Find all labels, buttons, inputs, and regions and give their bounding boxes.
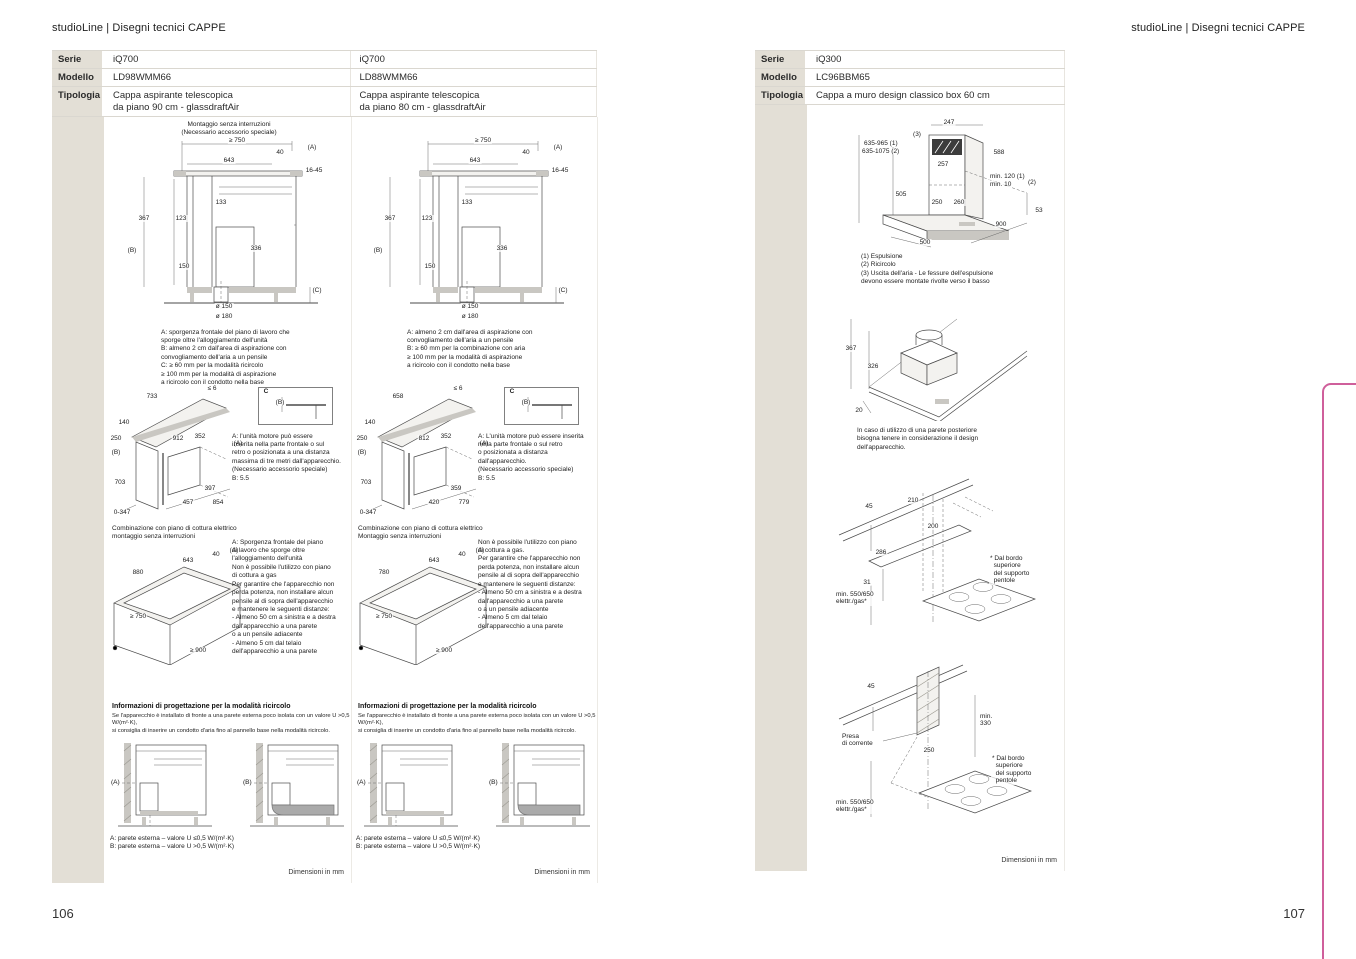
dimension-label: ≤ 6: [207, 385, 218, 392]
catalog-spread: studioLine | Disegni tecnici CAPPE studi…: [0, 0, 1356, 959]
dimension-label: 367: [138, 215, 151, 222]
dimension-label: 286: [875, 549, 888, 556]
dimension-label: (2): [1027, 179, 1037, 186]
dimension-label: 200: [927, 523, 940, 530]
modello-label: Modello: [755, 69, 807, 86]
recirculation-body: Se l'apparecchio è installato di fronte …: [358, 713, 598, 736]
dimension-label: 505: [895, 191, 908, 198]
dimension-label: 16-45: [551, 167, 570, 174]
dimension-label: 250: [923, 747, 936, 754]
dimension-label: 658: [392, 393, 405, 400]
serie-label: Serie: [755, 51, 807, 68]
dimension-label: 780: [378, 569, 391, 576]
dimension-label: 20: [854, 407, 863, 414]
dimension-label: * Dal bordo superiore del supporto pento…: [991, 755, 1032, 785]
dimension-label: 45: [864, 503, 873, 510]
dimension-label: min. 550/650 elettr./gas*: [835, 799, 875, 814]
recirculation-heading: Informazioni di progettazione per la mod…: [358, 703, 596, 710]
dimension-label: (A): [356, 779, 367, 786]
dimension-label: 150: [424, 263, 437, 270]
section-view-drawing: ≥ 750(A)4064316-45367123133(B)336150(C)ø…: [370, 137, 580, 322]
dimension-label: 16-45: [305, 167, 324, 174]
dimension-label: * Dal bordo superiore del supporto pento…: [989, 555, 1030, 585]
tipologia-col2: Cappa aspirante telescopica da piano 80 …: [351, 87, 598, 116]
dimension-label: 150: [178, 263, 191, 270]
dimension-label: (B): [521, 399, 532, 406]
dimension-label: 250: [931, 199, 944, 206]
annotation-text-abc: A: almeno 2 cm dall'area di aspirazione …: [407, 329, 582, 371]
dimension-label: 326: [867, 363, 880, 370]
dimension-label: 779: [458, 499, 471, 506]
page-right: Serie iQ300 Modello LC96BBM65 Tipologia …: [755, 50, 1065, 880]
dimension-label: 352: [194, 433, 207, 440]
dimension-label: 880: [132, 569, 145, 576]
dimension-label: 367: [384, 215, 397, 222]
dimension-label: 352: [440, 433, 453, 440]
serie-col1: iQ700: [104, 51, 351, 68]
dimension-label: 123: [421, 215, 434, 222]
modello-label: Modello: [52, 69, 104, 86]
dimension-label: Presa di corrente: [841, 733, 874, 748]
dimension-label: ≥ 900: [435, 647, 453, 654]
iso-hob-drawing: 78064340(A)≥ 750≥ 900: [352, 547, 492, 665]
dimension-label: (C): [311, 287, 322, 294]
drawing-title: Montaggio senza interruzioni (Necessario…: [134, 121, 324, 138]
wall-value-footnote: A: parete esterna – valore U ≤0,5 W/(m²·…: [356, 835, 594, 852]
table-row-tipologia: Tipologia Cappa a muro design classico b…: [755, 87, 1065, 105]
dimension-label: 0-347: [113, 509, 132, 516]
annotation-text-hob: Non è possibile l'utilizzo con piano di …: [478, 539, 598, 632]
power-socket-drawing: 45Presa di corrente250min. 330min. 550/6…: [831, 661, 1046, 831]
dimension-label: min. 330: [979, 713, 993, 728]
dimension-label: 0-347: [359, 509, 378, 516]
dimension-label: 733: [146, 393, 159, 400]
dimension-label: 643: [469, 157, 482, 164]
expulsion-notes: (1) Espulsione (2) Ricircolo (3) Uscita …: [861, 253, 1061, 287]
product-column-ld88wmm66: ≥ 750(A)4064316-45367123133(B)336150(C)ø…: [352, 117, 598, 883]
table-row-serie: Serie iQ700 iQ700: [52, 50, 597, 69]
annotation-text-hob: A: Sporgenza frontale del piano di lavor…: [232, 539, 352, 657]
dimension-label: 643: [182, 557, 195, 564]
dimension-label: 140: [364, 419, 377, 426]
dimension-label: (B): [127, 247, 138, 254]
pink-annotation-box: [1322, 383, 1356, 959]
dimension-label: (C): [557, 287, 568, 294]
recirculation-drawing-a: (A): [356, 739, 461, 831]
tipologia-col1: Cappa aspirante telescopica da piano 90 …: [104, 87, 351, 116]
page-left: Serie iQ700 iQ700 Modello LD98WMM66 LD88…: [52, 50, 597, 880]
modello-value: LC96BBM65: [807, 69, 1065, 86]
dimension-label: 854: [212, 499, 225, 506]
rear-wall-drawing: 36732620: [839, 301, 1034, 421]
dimension-label: 40: [275, 149, 284, 156]
dimension-label: 210: [907, 497, 920, 504]
dimension-label: min. 120 (1): [989, 173, 1026, 180]
dimension-label: 588: [993, 149, 1006, 156]
dimension-label: (A): [553, 144, 564, 151]
dimension-label: (B): [242, 779, 253, 786]
dimension-label: 40: [211, 551, 220, 558]
dimension-label: ≥ 750: [228, 137, 246, 144]
section-view-drawing: ≥ 750(A)4064316-45367123133(B)336150(C)ø…: [124, 137, 334, 322]
rear-wall-caption: In caso di utilizzo di una parete poster…: [857, 427, 1057, 452]
dimension-label: 140: [118, 419, 131, 426]
recirculation-body: Se l'apparecchio è installato di fronte …: [112, 713, 352, 736]
tipologia-value: Cappa a muro design classico box 60 cm: [807, 87, 1065, 104]
dimension-label: 912: [172, 435, 185, 442]
modello-col2: LD88WMM66: [351, 69, 598, 86]
dimension-label: ø 150: [215, 303, 234, 310]
dimension-label: (B): [357, 449, 368, 456]
recirculation-drawing-a: (A): [110, 739, 215, 831]
table-row-modello: Modello LC96BBM65: [755, 69, 1065, 87]
dimension-label: ø 180: [461, 313, 480, 320]
dimension-label: (B): [111, 449, 122, 456]
header-right: studioLine | Disegni tecnici CAPPE: [1131, 22, 1305, 34]
serie-label: Serie: [52, 51, 104, 68]
recirculation-drawing-b: (B): [488, 739, 593, 831]
label-column-strip: [755, 105, 809, 871]
dimension-label: 257: [937, 161, 950, 168]
dimension-label: (B): [488, 779, 499, 786]
table-row-modello: Modello LD98WMM66 LD88WMM66: [52, 69, 597, 87]
dimension-label: min. 10: [989, 181, 1012, 188]
dimension-label: 40: [521, 149, 530, 156]
dimension-label: 40: [457, 551, 466, 558]
dimension-label: 31: [862, 579, 871, 586]
dimension-label: (A): [110, 779, 121, 786]
dimension-label: ≥ 750: [474, 137, 492, 144]
table-row-tipologia: Tipologia Cappa aspirante telescopica da…: [52, 87, 597, 117]
recirculation-heading: Informazioni di progettazione per la mod…: [112, 703, 350, 710]
dimension-label: 900: [995, 221, 1008, 228]
dimension-label: C: [509, 388, 516, 395]
dimension-label: (A): [307, 144, 318, 151]
tipologia-label: Tipologia: [52, 87, 104, 116]
label-column-strip: [52, 117, 106, 883]
dimension-label: 500: [919, 239, 932, 246]
serie-value: iQ300: [807, 51, 1065, 68]
dimension-label: 703: [360, 479, 373, 486]
dimension-label: 703: [114, 479, 127, 486]
annotation-text-motor: A: L'unità motore può essere inserita ne…: [478, 433, 598, 484]
iso-hob-drawing: 88064340(A)≥ 750≥ 900: [106, 547, 246, 665]
dimension-label: 123: [175, 215, 188, 222]
dimension-label: ≥ 750: [129, 613, 147, 620]
modello-col1: LD98WMM66: [104, 69, 351, 86]
annotation-text-motor: A: l'unità motore può essere inserita ne…: [232, 433, 350, 484]
dimension-label: ≤ 6: [453, 385, 464, 392]
dimension-label: 420: [428, 499, 441, 506]
dimension-label: ø 150: [461, 303, 480, 310]
dimension-label: 260: [953, 199, 966, 206]
dimension-label: ø 180: [215, 313, 234, 320]
dimension-label: 53: [1034, 207, 1043, 214]
dimension-label: min. 550/650 elettr./gas*: [835, 591, 875, 606]
dimension-label: 359: [450, 485, 463, 492]
wall-value-footnote: A: parete esterna – valore U ≤0,5 W/(m²·…: [110, 835, 348, 852]
product-column-ld98wmm66: Montaggio senza interruzioni (Necessario…: [106, 117, 352, 883]
dimensions-note: Dimensioni in mm: [352, 869, 590, 876]
annotation-text-abc: A: sporgenza frontale del piano di lavor…: [161, 329, 336, 388]
dimension-label: (3): [912, 131, 922, 138]
dimension-label: 247: [943, 119, 956, 126]
dimension-label: 250: [110, 435, 123, 442]
product-column-lc96bbm65: 247(3)635-965 (1)635-1075 (2)588257min. …: [809, 105, 1065, 871]
dimension-label: 133: [461, 199, 474, 206]
dimension-label: 635-965 (1): [863, 140, 899, 147]
header-left: studioLine | Disegni tecnici CAPPE: [52, 22, 226, 34]
dimension-label: 336: [496, 245, 509, 252]
page-number-left: 106: [52, 906, 74, 921]
table-row-serie: Serie iQ300: [755, 50, 1065, 69]
dimension-label: 397: [204, 485, 217, 492]
page-number-right: 107: [1283, 906, 1305, 921]
detail-inset-drawing: C(B): [504, 387, 579, 425]
dimension-label: 367: [845, 345, 858, 352]
detail-inset-drawing: C(B): [258, 387, 333, 425]
dimension-label: 812: [418, 435, 431, 442]
tipologia-label: Tipologia: [755, 87, 807, 104]
dimension-label: C: [263, 388, 270, 395]
chimney-hood-drawing: 247(3)635-965 (1)635-1075 (2)588257min. …: [831, 119, 1046, 249]
dimension-label: ≥ 750: [375, 613, 393, 620]
dimension-label: (B): [275, 399, 286, 406]
dimensions-note: Dimensioni in mm: [106, 869, 344, 876]
dimension-label: (B): [373, 247, 384, 254]
dimension-label: 643: [223, 157, 236, 164]
dimensions-note: Dimensioni in mm: [809, 857, 1057, 864]
mounting-distances-drawing: 4521020028631min. 550/650 elettr./gas** …: [831, 473, 1046, 638]
serie-col2: iQ700: [351, 51, 598, 68]
dimension-label: 336: [250, 245, 263, 252]
dimension-label: 635-1075 (2): [861, 148, 900, 155]
dimension-label: 250: [356, 435, 369, 442]
dimension-label: 45: [866, 683, 875, 690]
recirculation-drawing-b: (B): [242, 739, 347, 831]
dimension-label: 457: [182, 499, 195, 506]
dimension-label: ≥ 900: [189, 647, 207, 654]
dimension-label: 133: [215, 199, 228, 206]
dimension-label: 643: [428, 557, 441, 564]
